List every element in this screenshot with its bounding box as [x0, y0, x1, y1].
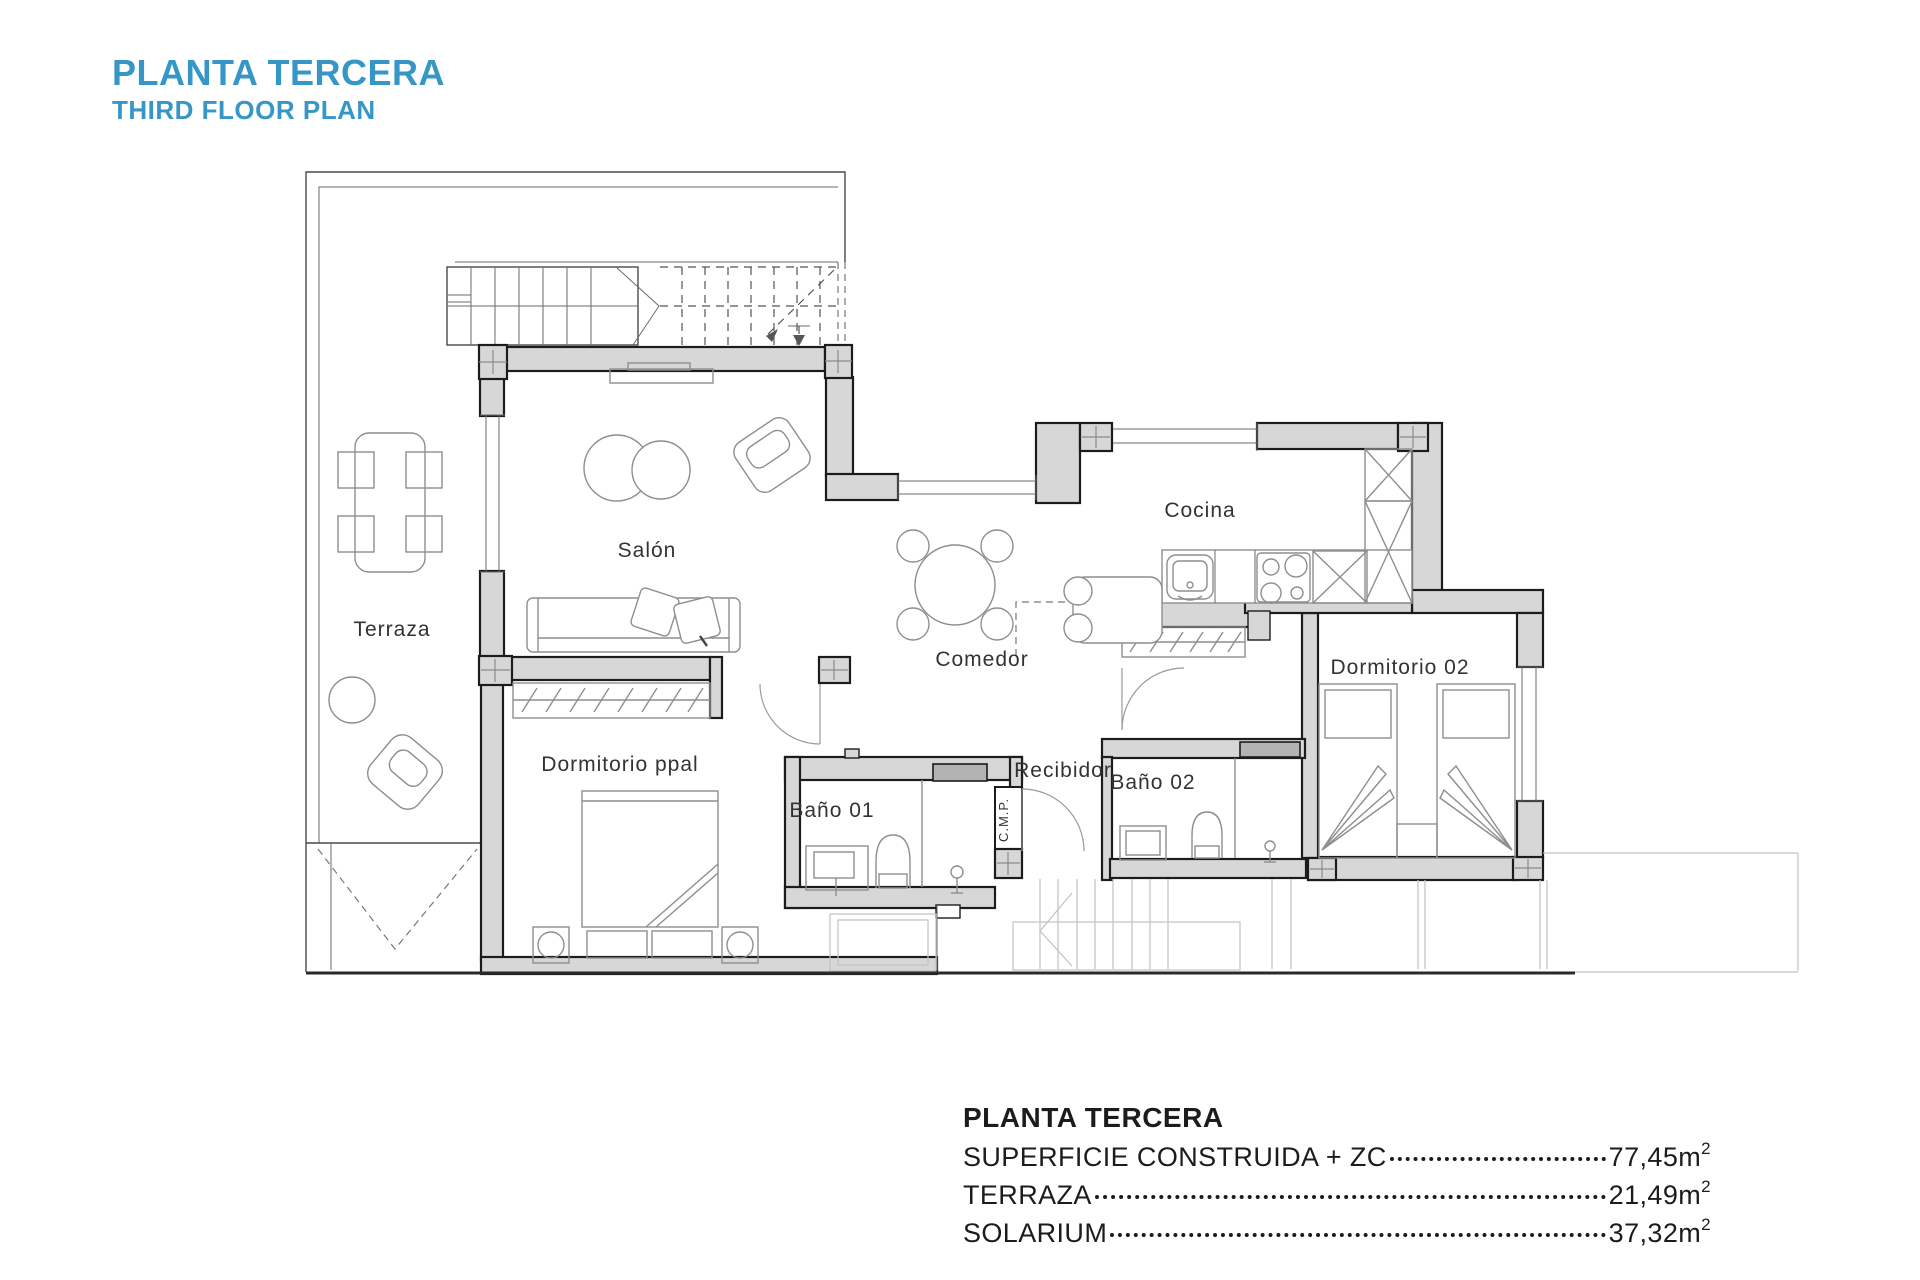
summary-row-label: TERRAZA — [963, 1180, 1092, 1211]
summary-row-label: SOLARIUM — [963, 1218, 1107, 1249]
chair — [406, 516, 442, 552]
dot-leader — [1110, 1232, 1605, 1237]
chair — [338, 516, 374, 552]
chair — [897, 608, 929, 640]
dining-table — [915, 545, 995, 625]
window-terrace-salon — [480, 415, 505, 572]
summary-row-label: SUPERFICIE CONSTRUIDA + ZC — [963, 1142, 1387, 1173]
stairs-upper — [447, 262, 838, 346]
window-comedor — [898, 475, 1036, 500]
pillar-icon — [819, 657, 850, 683]
chair — [897, 530, 929, 562]
chair — [338, 452, 374, 488]
room-label-recibidor: Recibidor — [1014, 759, 1112, 782]
room-label-cocina: Cocina — [1164, 499, 1235, 522]
room-label-dormitorio-02: Dormitorio 02 — [1330, 656, 1469, 679]
pillow — [652, 931, 712, 958]
pillar-icon — [479, 656, 512, 685]
summary-row: SOLARIUM 37,32m2 — [963, 1217, 1711, 1255]
room-label-dormitorio-ppal: Dormitorio ppal — [541, 753, 698, 776]
armchair — [729, 413, 814, 497]
chair — [981, 608, 1013, 640]
terrace-armchair — [362, 729, 448, 815]
summary-row: TERRAZA 21,49m2 — [963, 1179, 1711, 1217]
stair-direction-arrow — [766, 270, 834, 346]
pillar-icon — [825, 345, 852, 378]
door-entrada — [1022, 789, 1084, 851]
dining-table-set — [897, 530, 1013, 640]
bed-single-1 — [1319, 684, 1397, 858]
door-dormitorio-ppal — [760, 684, 820, 744]
terrace-table — [355, 433, 425, 572]
room-label-comedor: Comedor — [935, 648, 1028, 671]
door-dormitorio-02 — [1122, 668, 1184, 730]
pillar-icon — [1513, 857, 1543, 880]
window-dormitorio-02 — [1517, 667, 1543, 801]
terrace-table-set — [338, 433, 442, 572]
nightstand — [1397, 824, 1437, 858]
area-summary: PLANTA TERCERA SUPERFICIE CONSTRUIDA + Z… — [963, 1102, 1711, 1255]
dot-leader — [1390, 1156, 1606, 1161]
toilet-icon — [876, 835, 910, 888]
floor-plan-page: PLANTA TERCERA THIRD FLOOR PLAN — [0, 0, 1920, 1280]
pillar-icon — [995, 849, 1022, 878]
summary-row: SUPERFICIE CONSTRUIDA + ZC 77,45m2 — [963, 1141, 1711, 1179]
room-label-terraza: Terraza — [353, 618, 430, 641]
coffee-table — [632, 441, 690, 499]
washbasin-icon — [1120, 826, 1166, 860]
sofa — [527, 587, 740, 652]
summary-row-value: 21,49m2 — [1609, 1179, 1711, 1211]
room-label-bano-02: Baño 02 — [1110, 771, 1195, 794]
summary-row-value: 77,45m2 — [1609, 1141, 1711, 1173]
pillar-icon — [1080, 423, 1112, 451]
window-cocina — [1112, 423, 1257, 451]
dot-leader — [1095, 1194, 1606, 1199]
room-label-salon: Salón — [618, 539, 677, 562]
bathroom-01-fixtures — [806, 780, 963, 896]
vent-bano-02 — [1240, 742, 1300, 757]
wardrobe-ppal — [513, 683, 710, 718]
floor-plan-drawing: Terraza Salón Comedor Cocina Dormitorio … — [0, 0, 1920, 1280]
summary-row-value: 37,32m2 — [1609, 1217, 1711, 1249]
kitchen-peninsula — [1064, 577, 1162, 643]
bed-single-2 — [1437, 684, 1515, 858]
pillar-icon — [479, 345, 507, 379]
chair — [981, 530, 1013, 562]
bed-main — [533, 791, 758, 963]
pillow — [587, 931, 647, 958]
toilet-icon — [1192, 812, 1222, 858]
pillow — [1325, 690, 1391, 738]
pillar-icon — [1398, 423, 1428, 451]
vent-bano-01 — [933, 764, 987, 781]
room-label-bano-01: Baño 01 — [789, 799, 874, 822]
chair — [406, 452, 442, 488]
room-label-cmp: C.M.P. — [996, 798, 1011, 842]
pillow — [1443, 690, 1509, 738]
summary-title: PLANTA TERCERA — [963, 1102, 1711, 1134]
plant — [329, 677, 375, 723]
pillar-icon — [1308, 858, 1336, 880]
